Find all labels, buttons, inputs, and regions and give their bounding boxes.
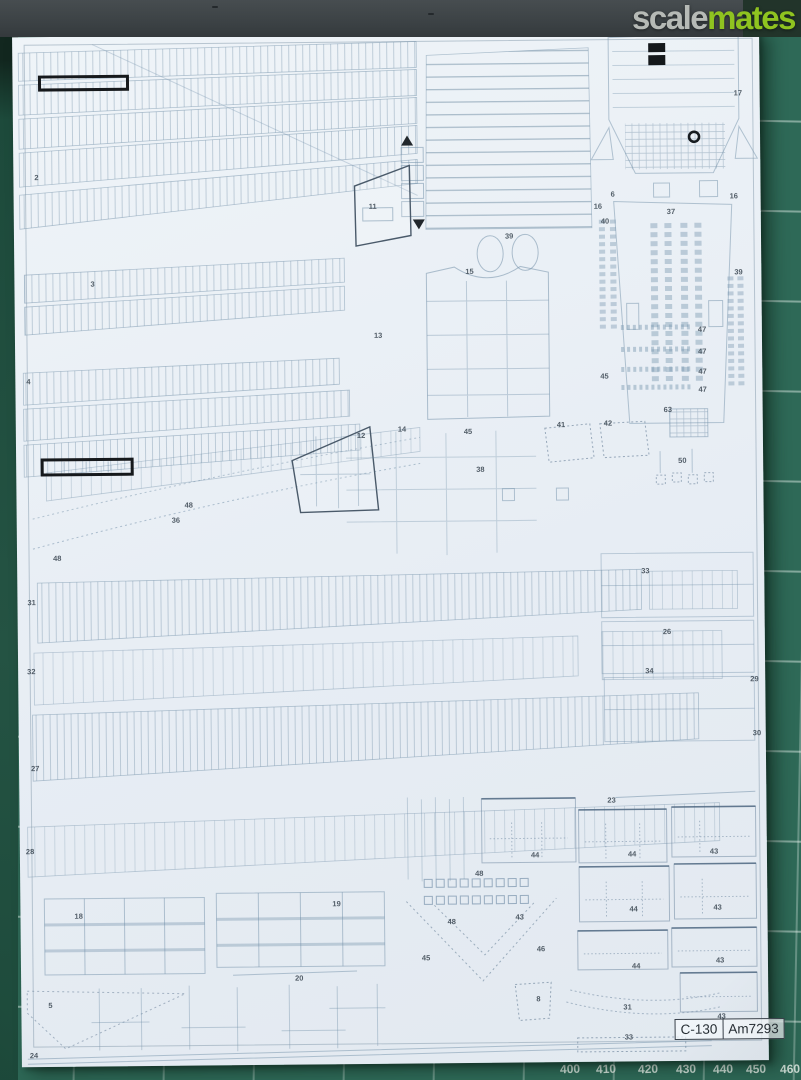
part-number-label: 37 xyxy=(667,208,675,216)
part-number-label: 31 xyxy=(623,1003,631,1011)
band-speck xyxy=(212,6,218,8)
part-number-label: 47 xyxy=(698,386,706,394)
part-number-label: 47 xyxy=(698,348,706,356)
mat-ruler-number: 420 xyxy=(638,1062,659,1077)
part-number-label: 39 xyxy=(505,233,513,241)
mat-ruler-number: 430 xyxy=(676,1062,697,1077)
part-number-label: 44 xyxy=(628,850,636,858)
part-number-label: 47 xyxy=(698,368,706,376)
part-number-label: 44 xyxy=(632,962,640,970)
part-number-label: 39 xyxy=(734,268,742,276)
part-number-label: 63 xyxy=(664,406,672,414)
part-number-label: 44 xyxy=(629,905,637,913)
part-number-label: 33 xyxy=(641,567,649,575)
part-number-label: 38 xyxy=(476,466,484,474)
kit-code: Am7293 xyxy=(722,1019,783,1039)
part-number-label: 43 xyxy=(713,904,721,912)
part-number-label: 32 xyxy=(27,668,35,676)
part-number-label: 18 xyxy=(74,913,82,921)
mat-ruler-number: 460 xyxy=(780,1062,801,1077)
part-labels-layer: 2341113153912144541423861640371617394747… xyxy=(12,30,769,1067)
part-number-label: 20 xyxy=(295,975,303,983)
part-number-label: 30 xyxy=(753,729,761,737)
part-number-label: 17 xyxy=(734,89,742,97)
part-number-label: 43 xyxy=(710,848,718,856)
part-number-label: 40 xyxy=(601,218,609,226)
part-number-label: 27 xyxy=(31,765,39,773)
parts-sheet: 2341113153912144541423861640371617394747… xyxy=(12,30,769,1067)
part-number-label: 12 xyxy=(357,432,365,440)
part-number-label: 44 xyxy=(531,851,539,859)
part-number-label: 45 xyxy=(464,428,472,436)
part-number-label: 46 xyxy=(537,945,545,953)
part-number-label: 13 xyxy=(374,332,382,340)
part-number-label: 14 xyxy=(398,426,406,434)
part-number-label: 8 xyxy=(536,995,540,1003)
part-number-label: 36 xyxy=(172,517,180,525)
part-number-label: 34 xyxy=(645,667,653,675)
band-speck xyxy=(428,13,434,15)
model-name: C-130 xyxy=(676,1020,723,1039)
mat-ruler-number: 440 xyxy=(713,1062,734,1077)
part-number-label: 3 xyxy=(90,281,94,289)
watermark-text-mates: mates xyxy=(707,0,795,36)
part-number-label: 4 xyxy=(26,378,30,386)
part-number-label: 6 xyxy=(611,191,615,199)
part-number-label: 23 xyxy=(607,797,615,805)
part-number-label: 29 xyxy=(750,675,758,683)
part-number-label: 31 xyxy=(27,599,35,607)
part-number-label: 33 xyxy=(625,1033,633,1041)
part-number-label: 50 xyxy=(678,457,686,465)
part-number-label: 48 xyxy=(185,502,193,510)
part-number-label: 26 xyxy=(663,628,671,636)
title-block: C-130 Am7293 xyxy=(675,1018,785,1040)
part-number-label: 45 xyxy=(422,954,430,962)
part-number-label: 11 xyxy=(369,203,377,211)
part-number-label: 48 xyxy=(448,918,456,926)
mat-ruler-number: 410 xyxy=(596,1062,617,1077)
part-number-label: 24 xyxy=(30,1052,38,1060)
part-number-label: 45 xyxy=(600,373,608,381)
part-number-label: 15 xyxy=(465,268,473,276)
scalemates-watermark: scalemates xyxy=(632,0,795,37)
part-number-label: 2 xyxy=(34,174,38,182)
part-number-label: 48 xyxy=(475,870,483,878)
part-number-label: 19 xyxy=(332,900,340,908)
part-number-label: 5 xyxy=(48,1002,52,1010)
part-number-label: 16 xyxy=(594,203,602,211)
watermark-text-scale: scale xyxy=(632,0,707,36)
photo-scene: 400410420430440450460 xyxy=(0,0,801,1080)
part-number-label: 43 xyxy=(716,957,724,965)
part-number-label: 42 xyxy=(604,420,612,428)
part-number-label: 47 xyxy=(698,326,706,334)
part-number-label: 41 xyxy=(557,421,565,429)
part-number-label: 48 xyxy=(53,555,61,563)
part-number-label: 16 xyxy=(730,192,738,200)
mat-ruler-number: 450 xyxy=(746,1062,767,1077)
part-number-label: 28 xyxy=(26,848,34,856)
part-number-label: 43 xyxy=(515,913,523,921)
mat-ruler-number: 400 xyxy=(560,1062,581,1077)
